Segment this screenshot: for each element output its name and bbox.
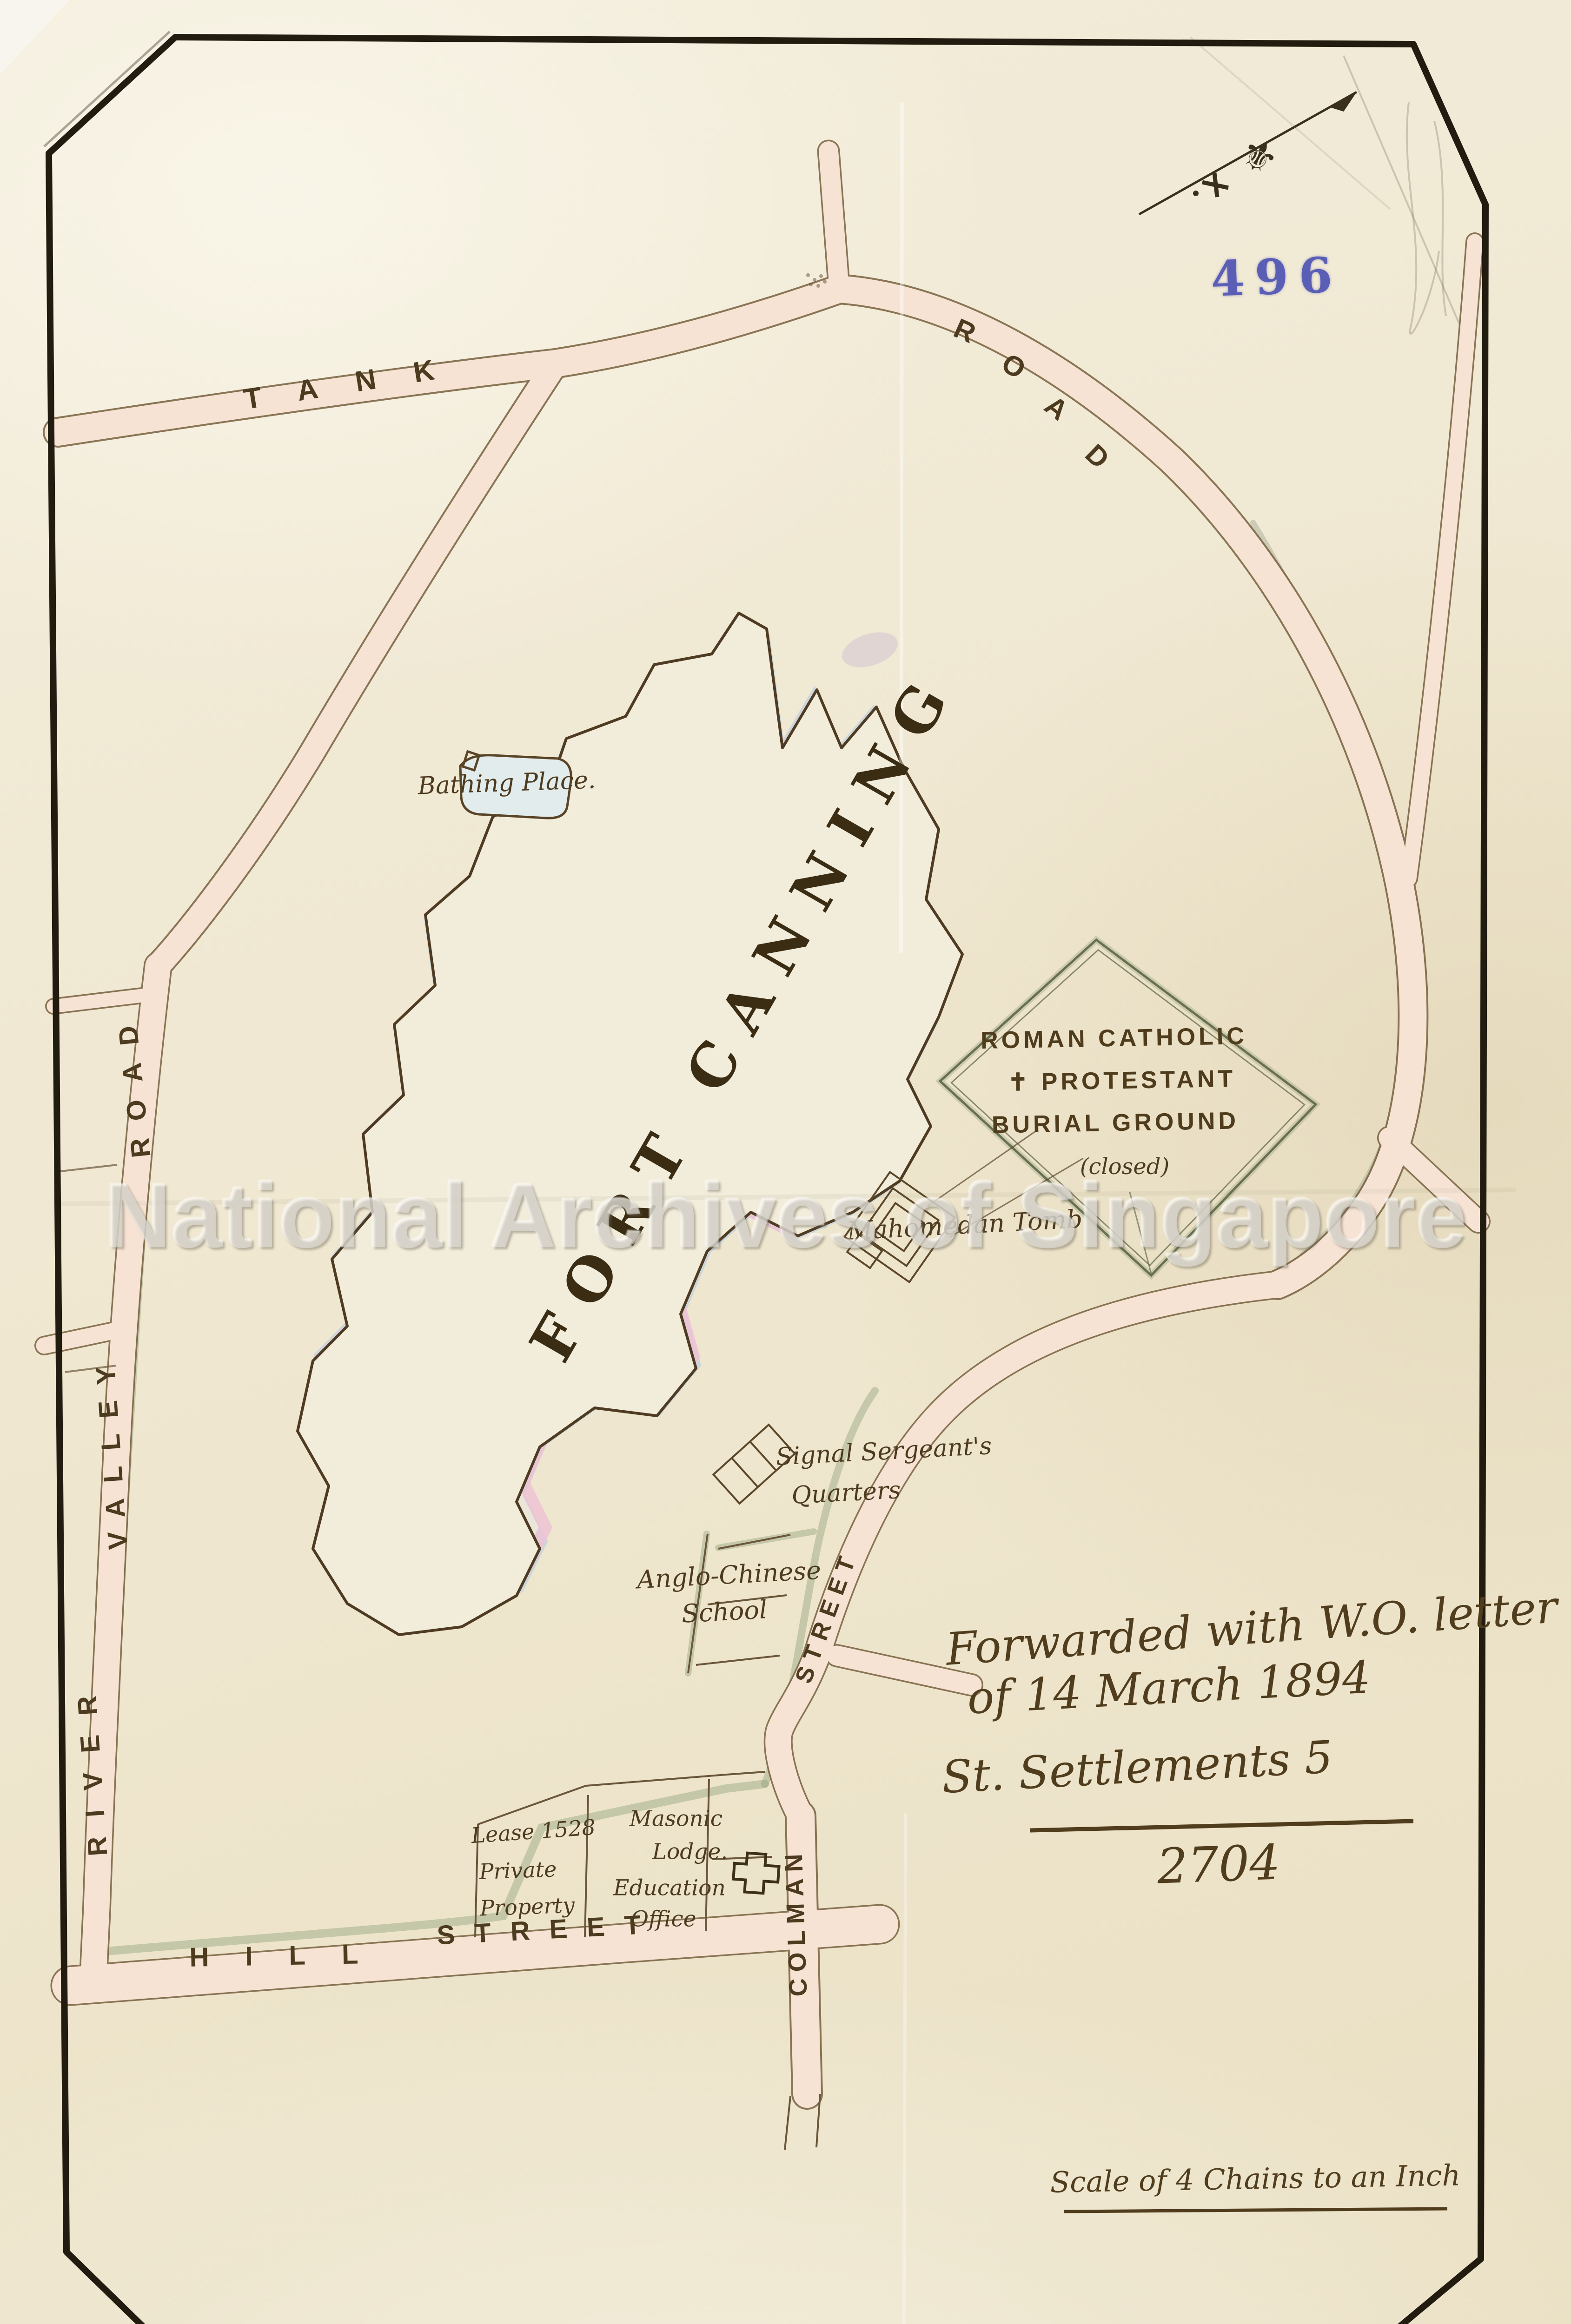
education-label-1: Education [613, 1877, 726, 1899]
signal-quarters-label-2: Quarters [791, 1478, 902, 1508]
masonic-label-1: Masonic [630, 1808, 723, 1830]
private-property-label-2: Property [479, 1894, 575, 1919]
masonic-label-2: Lodge. [652, 1841, 728, 1863]
burial-ground-label-closed: (closed) [1080, 1155, 1169, 1178]
bathing-place-label: Bathing Place. [418, 768, 596, 798]
street-label-colman: COLMAN [781, 1847, 811, 1997]
burial-ground-label-1: ROMAN CATHOLIC [981, 1024, 1247, 1053]
corner-cut [0, 0, 70, 74]
private-property-label-1: Private [479, 1858, 557, 1882]
burial-ground-label-2: ✝ PROTESTANT [1008, 1067, 1236, 1095]
historical-map-fort-canning: ⚜ 496 National Archives of Singapore TAN… [0, 0, 1571, 2324]
archive-stamp-number: 496 [1210, 251, 1344, 304]
stamp-smudge [838, 626, 902, 674]
street-label-hill: HILL [189, 1941, 395, 1971]
handwritten-note-line4: 2704 [1156, 1838, 1281, 1890]
scale-note: Scale of 4 Chains to an Inch [1050, 2161, 1461, 2197]
school-label-2: School [681, 1597, 768, 1627]
burial-ground-label-3: BURIAL GROUND [992, 1109, 1240, 1137]
education-label-2: Office [631, 1908, 696, 1930]
